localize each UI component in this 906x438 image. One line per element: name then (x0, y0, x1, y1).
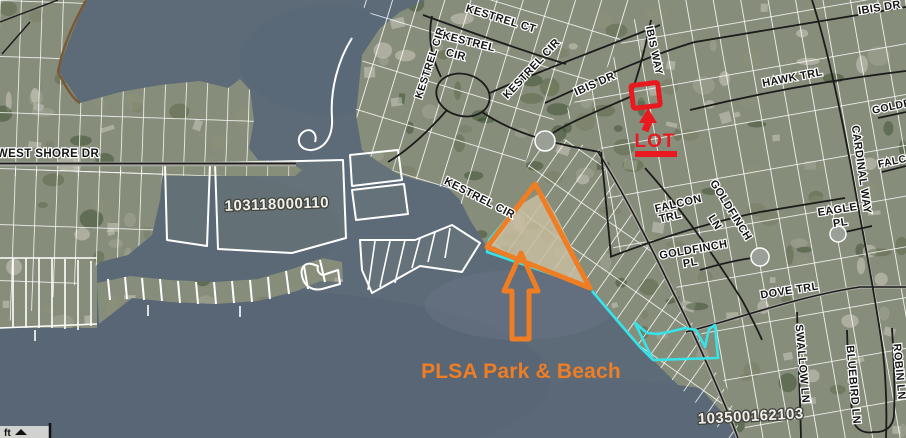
lot-label: LOT (635, 131, 676, 152)
map-canvas[interactable]: PLSA Park & Beach LOT KESTREL CTKESTRELC… (0, 0, 906, 438)
street-label-pl: PL (832, 216, 849, 230)
texture-blob (44, 306, 55, 314)
park-label: PLSA Park & Beach (421, 360, 621, 383)
scale-unit-label: ft (4, 428, 11, 438)
street-label-west-shore-dr: WEST SHORE DR (0, 148, 99, 160)
texture-blob (50, 315, 74, 330)
street-label-pl: PL (682, 256, 699, 270)
aerial-parcel-map[interactable]: PLSA Park & Beach LOT KESTREL CTKESTRELC… (0, 0, 906, 438)
